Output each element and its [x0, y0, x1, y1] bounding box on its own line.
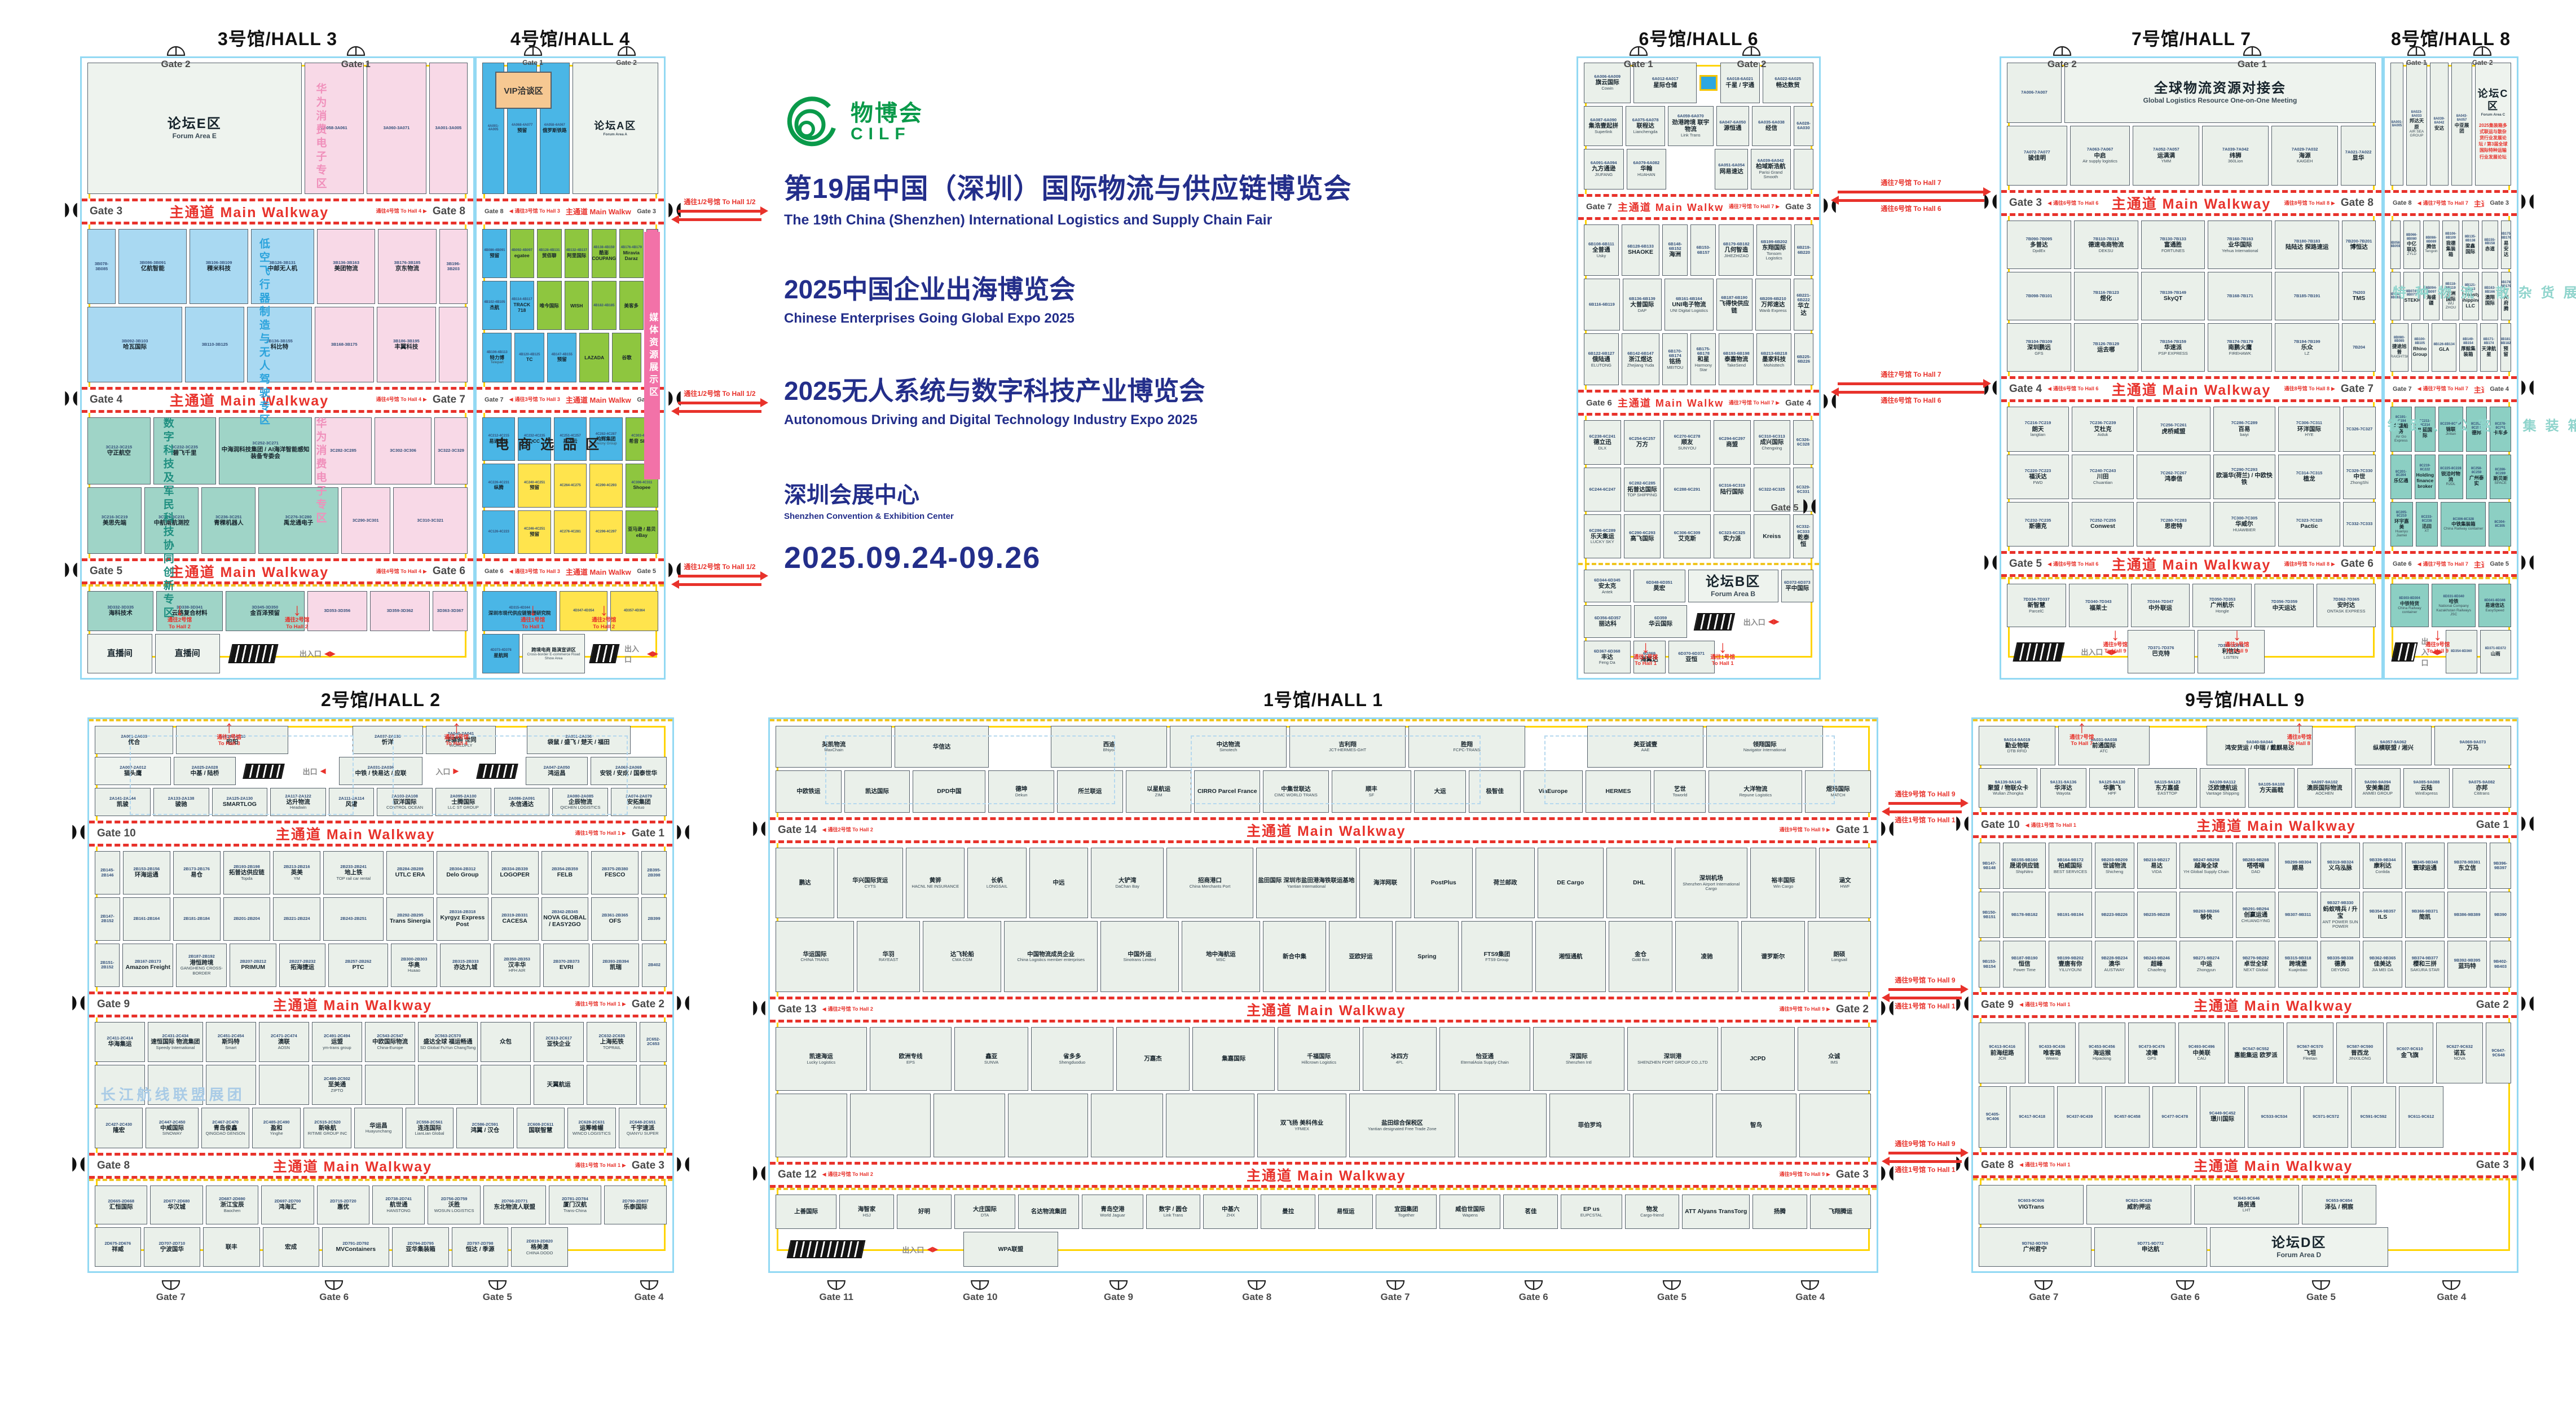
booth-name: 欧洲专线	[899, 1053, 923, 1060]
booth: 4B114-4B117TRACK 718	[510, 281, 535, 330]
booth-name: 黄骅	[930, 877, 941, 884]
booth-name-en: 4PL	[1396, 1060, 1403, 1065]
gate-door: Gate 9	[1104, 1277, 1133, 1303]
booth-code: 3A001-3A005	[435, 126, 462, 130]
booth-code: 3B186-3B195	[393, 339, 420, 343]
booth-code: 7B180-7B183	[2294, 239, 2320, 244]
booth: 7B126-7B129运去哪	[2074, 323, 2138, 372]
booth-name-en: ANT POWER SUN POWER	[2322, 920, 2358, 929]
booth-band: 9B147-9B1489B155-9B160晟诺供应链ShipNitro9B16…	[1973, 838, 2517, 991]
booth-code: 2D791-2D792	[342, 1241, 369, 1246]
connector-label: 通往1号馆 To Hall 1	[1883, 1166, 1967, 1174]
arrow-right-icon: ▶	[2331, 201, 2335, 206]
booth: 6B199-6B202东翔国际Tonsom Logistics	[1756, 224, 1791, 276]
booth-name-en: Smart	[225, 1046, 236, 1050]
gate-bowtie-icon	[2520, 193, 2535, 213]
booth-code: 9B366-9B371	[2412, 909, 2438, 914]
booth: 2D794-2D795亚华集装箱	[392, 1227, 448, 1267]
booth-name: JCPD	[1750, 1055, 1765, 1063]
booth-name-en: JIA MEI DA	[2372, 968, 2393, 972]
booth: 盐田综合保税区Yantian designated Free Trade Zon…	[1349, 1094, 1455, 1157]
booth-name: 杰航	[490, 305, 499, 310]
booth-name: 平中国际	[1785, 585, 1809, 592]
walkway-note: ◀通往1号馆 To Hall 1	[2019, 1162, 2070, 1167]
booth-code: 2B221-2B224	[284, 916, 310, 921]
booth-name: 深圳鹏远	[2027, 344, 2051, 351]
booth: 3C322-3C329	[434, 417, 468, 484]
booth-code: 7B130-7B133	[2160, 237, 2186, 241]
walkway-note: ◀通往3号馆 To Hall 3	[509, 209, 560, 214]
booth-name-en: STRAIGHTSHIP	[2390, 355, 2408, 359]
entrance-text: 出入口	[2081, 646, 2103, 657]
booth-code: 4B176-4B179	[621, 246, 642, 250]
booth: 3D353-3D356	[307, 591, 367, 631]
booth: 2B319-2B331CACESA	[491, 897, 539, 941]
walkway-note-text: 通往9号馆 To Hall 9	[1780, 827, 1825, 832]
hall-outline: 英凯物流MaxChain华信达西迪Bhiyor中达物流Simotech吉利翔JC…	[768, 717, 1878, 1273]
cilf-logo-swirl-icon	[784, 93, 843, 152]
direction-arrow: ↓通往2号馆To Hall 2	[592, 603, 616, 630]
gate-label: Gate 4	[2437, 1292, 2466, 1303]
booth: 6C290-6C293高飞国际	[1624, 514, 1661, 558]
connector-hall4-to-hall12: 通往1/2号馆 To Hall 1/2	[672, 199, 767, 223]
arrow-right-icon	[678, 210, 761, 213]
booth-code: 9B147-9B148	[1980, 861, 1998, 871]
booth-name-en: World Jaguar	[1100, 1213, 1125, 1218]
booth-name-en: Antek	[1602, 590, 1613, 594]
booth-band: 7C216-7C219朗天langtian7C236-7C239艾杜克Aiduk…	[2001, 402, 2381, 551]
booth-name: 恒信	[2019, 960, 2031, 968]
booth-code: 8C306-8C328	[2453, 518, 2474, 522]
booth-name-en: SAKURA STAR	[2410, 968, 2440, 972]
booth-name: 金飞旗	[2401, 1052, 2419, 1059]
booth: 荷兰邮政	[1476, 848, 1534, 919]
booth: 2B334-2B339LOGOPER	[491, 851, 539, 894]
booth: 2B145-2B146	[95, 851, 120, 894]
booth-name: 煜化	[2100, 295, 2112, 302]
booth-code: 7B185-7B191	[2294, 294, 2320, 298]
booth-name: 福沃达	[2029, 473, 2047, 481]
hall-outline: 论坛E区Forum Area E3A058-3A0613A060-3A0713A…	[80, 56, 475, 680]
booth: 2C495-2C502至美通ZIPTO	[312, 1065, 362, 1105]
booth: 谱罗斯尔	[1741, 921, 1804, 992]
gate-door-icon	[2440, 1277, 2463, 1292]
booth: 鑫亚SUNVA	[954, 1027, 1028, 1091]
booth-code: 3D363-3D367	[437, 609, 464, 613]
gate-door: Gate 2	[2047, 45, 2077, 70]
booth-name: 锐洽时物流	[2440, 471, 2461, 482]
booth-name: 华云国际	[1649, 620, 1672, 628]
booth: 3C236-3C251青稞机器人	[201, 487, 256, 554]
booth: 9B243-9B246超峰Chaofeng	[2137, 941, 2177, 987]
booth-code: 9C591-9C592	[2361, 1114, 2387, 1119]
booth	[1633, 1094, 1713, 1157]
booth-code: 2C563-2C570	[435, 1034, 461, 1038]
direction-text: 通往4号馆	[444, 734, 469, 741]
booth-name: 和星	[1697, 356, 1709, 363]
walkway-gate-right: Gate 4	[1785, 398, 1811, 408]
booth-code: 7C332-7C333	[2346, 522, 2373, 526]
booth: 8B175-8B176易安达	[2501, 221, 2511, 269]
booth-code: 3B196-3B203	[441, 262, 466, 271]
booth-name: 梁鑫国际	[2464, 243, 2477, 254]
booth-code: 6A022-6A025	[1774, 77, 1801, 81]
booth-code: 8B155-8B158	[2483, 239, 2497, 246]
booth: 6A022-6A025畅达数贸	[1763, 63, 1814, 103]
hall-title: 3号馆/HALL 3	[218, 25, 337, 51]
booth: 8D303-8D304中铁特货China Railway container	[2390, 584, 2429, 627]
booth-name: 环宇嘉美	[2392, 518, 2411, 530]
booth-code: 4B092-4B097	[512, 249, 532, 253]
hall-1: 1号馆/HALL 1英凯物流MaxChain华信达西迪Bhiyor中达物流Sim…	[768, 717, 1878, 1273]
direction-text: 通往1号馆	[521, 617, 545, 623]
gate-door-icon	[2174, 1277, 2196, 1292]
booth-code: 2B350-2B353	[504, 957, 530, 962]
booth: 6B148-6B152海洲	[1662, 224, 1688, 276]
booth: 3B196-3B203	[439, 229, 468, 304]
booth: 2B153-2B156环海运通	[123, 851, 170, 894]
booth: 2B304-2B312Delo Group	[437, 851, 488, 894]
booth-code: 8C258-8C259	[2468, 467, 2486, 474]
direction-arrow: ↓通往9号馆To Hall 9	[2103, 628, 2128, 655]
booth-name: 以星航运	[1147, 786, 1170, 793]
gate-label: Gate 1	[1624, 59, 1653, 70]
booth-code: 6A028-6A030	[1795, 121, 1812, 131]
booth-code: 6A012-6A017	[1652, 77, 1679, 81]
gate-label: Gate 9	[1104, 1292, 1133, 1303]
booth-code: 9B199-9B202	[2057, 956, 2084, 960]
booth-code: 6B136-6B139	[1629, 297, 1655, 301]
booth: 8C233-8C238迅田XT	[2416, 502, 2438, 547]
walkway-gate-right: Gate 3	[2490, 200, 2509, 206]
booth-code: 3A060-3A071	[384, 126, 410, 130]
booth-name: 华兴国际货运	[852, 877, 888, 884]
booth-code: 2B147-2B152	[96, 914, 118, 924]
booth-code: 9C603-9C606	[2018, 1198, 2045, 1203]
booth: 联丰	[203, 1227, 259, 1267]
booth-name: 论坛A区	[594, 120, 636, 133]
booth: 8D354-8D360	[2446, 630, 2477, 673]
booth: 9A075-9A082亦邦Cititrans	[2452, 768, 2511, 808]
gate-bowtie-icon	[71, 824, 86, 844]
booth: 3B176-3B185京东物流	[378, 229, 436, 304]
walkway-gate-left: Gate 5	[2009, 558, 2042, 570]
escalator-icon	[2391, 642, 2418, 662]
booth-name: 广州泰实	[2468, 475, 2486, 486]
booth-name: 宜园集团	[1394, 1206, 1418, 1213]
booth: 茗佳	[1503, 1195, 1558, 1229]
booth: 千福国际Hillcrown Logistics	[1278, 1027, 1360, 1091]
direction-text: To Hall 2	[168, 624, 192, 630]
gate-label: Gate 1	[522, 59, 543, 67]
booth-code: 6D348-6D351	[1646, 580, 1672, 585]
booth-name: 简凯	[2419, 914, 2431, 921]
walkway-note: ◀通往7号馆 To Hall 7	[2418, 386, 2468, 391]
direction-text: To Hall 2	[592, 624, 616, 630]
booth: 6B225-6B226	[1794, 333, 1813, 385]
booth: 9A109-9A112泛欧捷航运Vantage Shipping	[2200, 768, 2246, 808]
booth-name-en: Hillcrown Logistics	[1301, 1060, 1336, 1065]
booth-code: 7A029-7A032	[2292, 147, 2318, 152]
arrow-right-icon	[1838, 382, 1984, 385]
booth: 4B176-4B179Miravia Daraz	[619, 229, 644, 278]
booth-name: Miravia Daraz	[621, 250, 642, 261]
walkway-gate-left: Gate 8	[485, 208, 504, 215]
booth-row: 7D334-7D337新智慧ParcelC7D340-7D343福莱士7D344…	[2007, 584, 2376, 627]
booth-name-en: NOVA	[2454, 1056, 2465, 1061]
booth: 3D332-3D335海科技术	[87, 591, 153, 631]
walkway-label: 主通道 Main Walkway	[2104, 379, 2278, 399]
booth-name: 畅达数贸	[1776, 82, 1800, 89]
entrance-label: 出入口◀▶	[624, 634, 658, 673]
booth-code: 6B187-6B190	[1721, 296, 1747, 300]
arrow-left-icon: ◀	[822, 1172, 826, 1177]
direction-text: 通往9号馆	[2425, 642, 2450, 648]
booth: 6C332-6C333乾泰恒	[1793, 514, 1813, 558]
booth-row: 8B056-8B0598B066-8B080中亿联达ZYLD8B086-8B08…	[2390, 221, 2511, 269]
gate-label: Gate 10	[963, 1292, 997, 1303]
booth-code: 8D341-8D346	[2484, 599, 2505, 603]
main-walkway: Gate 13◀通往2号馆 To Hall 2主通道 Main Walkway通…	[770, 997, 1877, 1023]
booth-name: 铭扬	[1669, 358, 1681, 365]
booth-row: 4C226-4C231纵腾4C240-4C251预留4C264-4C2754C2…	[482, 464, 658, 508]
booth: 2B350-2B353汉丰华HFH AIR	[494, 944, 540, 987]
booth-name: 中外联运	[2148, 605, 2172, 612]
booth-name: 乐泰国际	[624, 1204, 648, 1211]
booth: 9D762-9D765广州君宁	[1979, 1227, 2091, 1267]
connector-label: 通往6号馆 To Hall 6	[1832, 205, 1990, 213]
booth-name-en: HWF	[1840, 884, 1850, 889]
booth-name: 鸿海汇	[279, 1204, 297, 1211]
booth: 7D362-7D365安时达ONTASK EXPRESS	[2317, 584, 2376, 627]
booth-name: 物发	[1646, 1206, 1658, 1213]
arrow-left-icon	[1888, 997, 1962, 999]
booth: 7A021-7A022显华	[2341, 126, 2376, 186]
booth: 菲伯罗坞	[1549, 1094, 1630, 1157]
booth: 3B078-3B085	[87, 229, 116, 304]
booth-code: 4B147-4B155	[552, 353, 573, 357]
booth: 9B150-9B151	[1979, 892, 2000, 938]
walkway-gate-left: Gate 5	[90, 565, 122, 578]
booth: 9C493-9C496中美联CAU	[2178, 1023, 2225, 1084]
booth-code: 7B174-7B179	[2227, 340, 2253, 344]
booth-name: 恒达 / 季源	[466, 1246, 495, 1253]
booth-band: 2D665-2D668汇恒国际2D677-2D680华汉城2D687-2D690…	[89, 1179, 672, 1271]
booth-code: 9B223-9B226	[2101, 913, 2128, 917]
booth-code: 4B182-4B185	[593, 304, 614, 308]
booth: 7C306-7C311环洋国际HYE	[2278, 407, 2340, 451]
booth-row: 7A006-7A007全球物流资源对接会Global Logistics Res…	[2007, 63, 2376, 123]
gate-bowtie-icon	[64, 201, 78, 221]
booth-code: 9B247-9B258	[2193, 858, 2220, 862]
booth: 裕丰国际Win Cargo	[1750, 848, 1816, 919]
booth-name-en: IMS	[1830, 1060, 1838, 1065]
booth: 7C326-7C327	[2343, 407, 2376, 451]
booth: 2B193-2B198拓普达供应链Topda	[223, 851, 271, 894]
booth-code: 9B153-9B154	[1980, 959, 1998, 969]
booth-code: 9B345-9B348	[2412, 860, 2438, 865]
booth: 招商港口China Merchants Port	[1166, 848, 1253, 919]
booth-row: 7B104-7B109深圳鹏远GFS7B126-7B129运去哪7B154-7B…	[2007, 323, 2376, 372]
booth-name: 广州君宁	[2023, 1246, 2047, 1253]
booth-name-en: ZIM	[1155, 793, 1162, 797]
booth-row: 7C232-7C235斯德克7C252-7C255Conwest7C280-7C…	[2007, 502, 2376, 547]
booth-code: 9B243-9B246	[2143, 956, 2170, 960]
booth-name-en: SUNYOU	[1678, 446, 1696, 451]
booth: 8B155-8B158赤道	[2482, 221, 2499, 269]
booth-name-en: Power Time	[2013, 968, 2036, 972]
gate-label: Gate 7	[2029, 1292, 2058, 1303]
booth-name: 易恒运	[1337, 1208, 1355, 1215]
booth: 9B199-9B202壹唐有你YILUYOUNI	[2049, 941, 2091, 987]
booth-row: 4B086-4B091预留4B092-4B097egatee4B128-4B13…	[482, 229, 658, 278]
booth-name-en: DTA	[981, 1213, 989, 1218]
booth: 黄骅HACNL NE INSURANCE	[906, 848, 965, 919]
booth-row: 9A139-9A146聚盟 / 物联众卡Wulian Zhongka9A131-…	[1979, 768, 2511, 808]
booth-row: 6C286-6C289乐天集运LUCKY SKY6C290-6C293高飞国际6…	[1584, 514, 1813, 558]
booth-code: 7A039-7A042	[2222, 147, 2249, 152]
booth	[850, 1094, 930, 1157]
booth-band: 3D332-3D335海科技术3D338-3D341云路复合材料3D345-3D…	[82, 584, 473, 678]
booth: 中基六ZHX	[1203, 1195, 1258, 1229]
walkway-note-text: 通往1号馆 To Hall 1	[2031, 823, 2076, 828]
booth: 9C449-9C452璟川国际	[2200, 1086, 2244, 1148]
arrow-right-icon: ▶	[622, 1002, 626, 1007]
forum-area: 跨境电商 路演宣讲区Cross-border E-commerce Road S…	[522, 634, 585, 673]
booth-name: 高飞国际	[1630, 535, 1654, 543]
booth-name-en: Together	[1398, 1213, 1415, 1218]
booth-code: 9B191-9B194	[2057, 913, 2084, 917]
booth-code: 9C413-9C416	[1989, 1045, 2015, 1049]
booth-name: 鹏达	[799, 879, 811, 887]
booth-row: 2C411-2C414华海集运2C431-2C434速恒国际 物流集团Speed…	[95, 1022, 667, 1062]
booth-code: 9C621-9C626	[2126, 1198, 2152, 1203]
booth-code: 9C627-9C632	[2446, 1045, 2473, 1049]
gate-door-icon	[969, 1277, 992, 1292]
booth-name: 网易速达	[1720, 168, 1743, 175]
booth-code: 3B092-3B103	[122, 339, 148, 343]
booth-name: 大庄国际	[973, 1206, 997, 1213]
booth-code: 6B108-6B111	[1588, 242, 1614, 246]
booth-code: 7B200-7B201	[2346, 239, 2372, 244]
walkway-gate-right: Gate 3	[1785, 202, 1811, 211]
booth-code: 7A063-7A067	[2087, 147, 2113, 152]
booth-code: 4C226-4C231	[488, 481, 509, 485]
booth: 9B283-9B288嗒嗒嘀DAD	[2236, 843, 2275, 889]
booth-name: 艾克斯	[1678, 535, 1696, 543]
booth-code: 8B149-8B154	[2461, 338, 2476, 345]
booth-name-en: FWD	[2033, 481, 2042, 485]
booth-name-en: CHUANGYING	[2242, 919, 2270, 923]
booth-name: 众包	[500, 1038, 512, 1046]
walkway-label: 主通道 Main Walkway	[135, 1156, 570, 1176]
booth-band: 7D334-7D337新智慧ParcelC7D340-7D343福莱士7D344…	[2001, 577, 2381, 678]
gate-door-icon	[345, 45, 367, 59]
booth-name: PostPlus	[1431, 879, 1456, 887]
booth: 威伯世国际Wapens	[1439, 1195, 1500, 1229]
booth-name: 大铲湾	[1119, 877, 1137, 884]
booth-code: 3D353-3D356	[324, 609, 350, 613]
gate-door-icon	[323, 1277, 345, 1292]
booth: WPA联盟	[963, 1232, 1058, 1267]
gate-door-icon	[2471, 45, 2494, 59]
arrow-right-icon: ▶	[423, 397, 427, 402]
booth-code: 6A051-6A054	[1718, 163, 1745, 168]
walkway-gate-right: Gate 4	[2490, 386, 2509, 393]
booth-code: 8C286-8C289	[2491, 468, 2509, 475]
booth-name: 稞米科技	[207, 265, 231, 272]
booth: 8D371-8D372山雨	[2480, 630, 2512, 673]
booth-name: 中远	[1053, 879, 1065, 887]
booth-name-en: LZ	[2305, 351, 2310, 356]
direction-arrow: ↓通往1号馆To Hall 1	[1633, 641, 1658, 667]
arrow-left-icon: ◀	[822, 827, 826, 832]
booth-row: 8C205-8C210环宇嘉美Huanyu Jiamei8C233-8C238迅…	[2390, 502, 2511, 547]
booth-name: 速恒国际 物流集团	[151, 1038, 200, 1046]
booth-name: 顺友	[1681, 439, 1693, 446]
booth-name-en: Cross-border E-commerce Road Show Area	[524, 653, 583, 660]
booth-name: 亚欧好运	[1349, 953, 1372, 960]
booth-name: 创赢运通	[2244, 911, 2267, 919]
booth-code: 8B056-8B059	[2390, 241, 2401, 249]
booth-code: 9B307-9B311	[2285, 913, 2311, 917]
booth-name: 智鸟	[1750, 1122, 1762, 1129]
booth: 6D356-6D357丽达科	[1584, 605, 1631, 638]
booth: 8A001-8A005	[2390, 63, 2403, 186]
booth: 7A039-7A042纬狮360Lion	[2202, 126, 2269, 186]
booth-name: TRACK 718	[512, 302, 533, 313]
walkway-note-text: 通往4号馆 To Hall 4	[376, 209, 421, 214]
booth-row: 鹏达华兴国际货运CYTS黄骅HACNL NE INSURANCE长帆LONGSA…	[776, 848, 1871, 919]
gate-label: Gate 8	[1242, 1292, 1271, 1303]
booth-code: 4B120-4B125	[519, 353, 540, 357]
main-walkway: Gate 7◀通往7号馆 To Hall 7主通道 Main WalkwayGa…	[2385, 376, 2517, 402]
booth-name: 中世	[2353, 473, 2365, 481]
floorplan-poster: 物博会 CILF 第19届中国（深圳）国际物流与供应链博览会 The 19th …	[0, 0, 2576, 1419]
booth-code: 6B193-6B198	[1723, 351, 1750, 356]
booth-code: 4C306-4C311	[631, 481, 652, 485]
booth-band: 3B078-3B0853B086-3B091亿航智能3B106-3B109稞米科…	[82, 224, 473, 387]
booth-row: 3D332-3D335海科技术3D338-3D341云路复合材料3D345-3D…	[87, 591, 468, 631]
booth: 8C306-8C328中铁集装箱China Railway container	[2441, 502, 2486, 547]
booth-name-en: HUAHAN	[1637, 173, 1655, 177]
registration-zone	[130, 735, 354, 815]
gate-bowtie-icon	[2520, 554, 2535, 574]
booth: 6B108-6B111全普通Usky	[1584, 224, 1619, 276]
booth: 3C212-3C215守正航空	[87, 417, 151, 484]
walkway-label: 主通道 Main Walkway	[1618, 395, 1723, 410]
booth: 谷歌	[612, 333, 641, 382]
booth: 7B204	[2342, 323, 2376, 372]
forum-note: 2025集装箱多式联运与散杂货行业发展论坛 / 第3届全球国际特种运输行业发展论…	[2478, 122, 2508, 160]
hall-title: 2号馆/HALL 2	[321, 686, 441, 712]
booth: 4B128-4B131贸佰聊	[537, 229, 562, 278]
booth-code: 2C467-2C470	[212, 1120, 239, 1125]
booth-name: 柏威国际	[2059, 862, 2082, 870]
booth-code: 4C240-4C251	[524, 481, 545, 485]
walkway-note: 通往9号馆 To Hall 9▶	[1780, 827, 1830, 832]
booth-name: 晟诺供应链	[2010, 862, 2040, 870]
booth-name: 寰球运通	[2413, 865, 2437, 872]
booth-code: 2B201-2B204	[234, 916, 260, 921]
booth-row: 华运国际CHINA TRANS华羽RAYEAST达飞轮船CMA CGM中国物流成…	[776, 921, 1871, 992]
booth-code: 7B110-7B113	[2093, 237, 2119, 241]
booth: 9C437-9C439	[2057, 1086, 2102, 1148]
booth: 9A105-9A108方天画戟	[2248, 768, 2295, 808]
booth: 9C627-9C632诺瓦NOVA	[2436, 1023, 2483, 1084]
booth: 9D771-9D772申达航	[2094, 1227, 2207, 1267]
gate-bowtie-icon	[1802, 498, 1817, 518]
